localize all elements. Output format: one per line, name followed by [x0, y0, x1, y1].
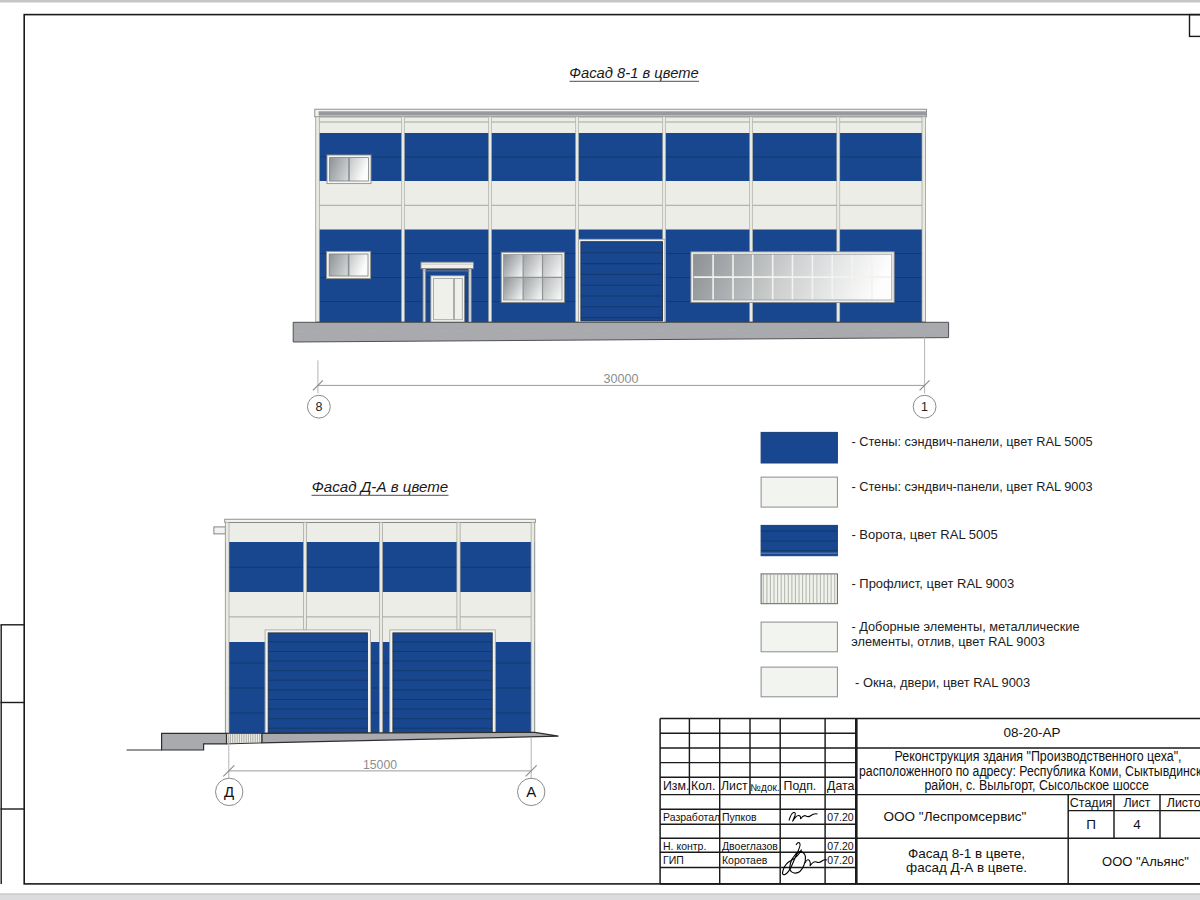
svg-text:Двоеглазов: Двоеглазов	[722, 840, 778, 852]
svg-text:07.20: 07.20	[827, 854, 853, 866]
svg-text:- Окна, двери, цвет RAL 9003: - Окна, двери, цвет RAL 9003	[855, 675, 1030, 690]
svg-text:- Профлист, цвет RAL 9003: - Профлист, цвет RAL 9003	[851, 576, 1014, 591]
svg-text:Фасад Д-А в цвете: Фасад Д-А в цвете	[312, 478, 449, 495]
svg-text:Н. контр.: Н. контр.	[663, 840, 706, 852]
svg-text:П: П	[1086, 817, 1096, 832]
svg-text:ООО "Леспромсервис": ООО "Леспромсервис"	[884, 809, 1027, 824]
svg-text:4: 4	[1133, 817, 1141, 832]
svg-text:1: 1	[921, 400, 928, 414]
svg-text:элементы, отлив, цвет RAL 9003: элементы, отлив, цвет RAL 9003	[851, 634, 1045, 649]
svg-text:Фасад 8-1 в цвете,: Фасад 8-1 в цвете,	[908, 846, 1025, 861]
svg-text:Изм.: Изм.	[663, 779, 689, 793]
svg-text:Разработал: Разработал	[663, 811, 720, 823]
svg-text:Пупков: Пупков	[722, 811, 757, 823]
svg-text:08-20-АР: 08-20-АР	[1003, 725, 1060, 740]
svg-text:15000: 15000	[363, 758, 397, 772]
svg-text:Фасад 8-1 в цвете: Фасад 8-1 в цвете	[569, 64, 699, 81]
svg-text:район, с. Выльгорт, Сысольское: район, с. Выльгорт, Сысольское шоссе	[924, 777, 1149, 793]
svg-text:Дата: Дата	[827, 779, 854, 793]
svg-text:8: 8	[315, 400, 322, 414]
svg-text:Лист: Лист	[721, 779, 748, 793]
svg-text:07.20: 07.20	[827, 811, 853, 823]
svg-text:Коротаев: Коротаев	[722, 854, 768, 866]
svg-text:Стадия: Стадия	[1070, 796, 1113, 810]
svg-text:- Доборные элементы, металличе: - Доборные элементы, металлические	[851, 619, 1079, 634]
svg-text:А: А	[526, 783, 536, 800]
svg-text:- Стены: сэндвич-панели, цвет: - Стены: сэндвич-панели, цвет RAL 5005	[851, 434, 1092, 449]
svg-text:ГИП: ГИП	[663, 854, 684, 866]
svg-text:фасад Д-А в цвете.: фасад Д-А в цвете.	[906, 860, 1027, 875]
svg-text:07.20: 07.20	[827, 840, 853, 852]
svg-text:Подп.: Подп.	[784, 779, 817, 793]
svg-text:Реконструкция здания "Производ: Реконструкция здания "Производственного …	[895, 748, 1182, 764]
svg-text:№док.: №док.	[750, 782, 779, 793]
svg-text:30000: 30000	[604, 372, 639, 386]
svg-text:- Стены: сэндвич-панели, цвет: - Стены: сэндвич-панели, цвет RAL 9003	[851, 479, 1092, 494]
svg-text:Д: Д	[224, 783, 234, 800]
svg-text:Лист: Лист	[1123, 796, 1150, 810]
svg-text:- Ворота, цвет RAL 5005: - Ворота, цвет RAL 5005	[851, 527, 997, 542]
svg-text:Листов: Листов	[1167, 796, 1200, 810]
svg-text:ООО "Альянс": ООО "Альянс"	[1102, 854, 1189, 869]
svg-text:Кол.: Кол.	[691, 779, 715, 793]
